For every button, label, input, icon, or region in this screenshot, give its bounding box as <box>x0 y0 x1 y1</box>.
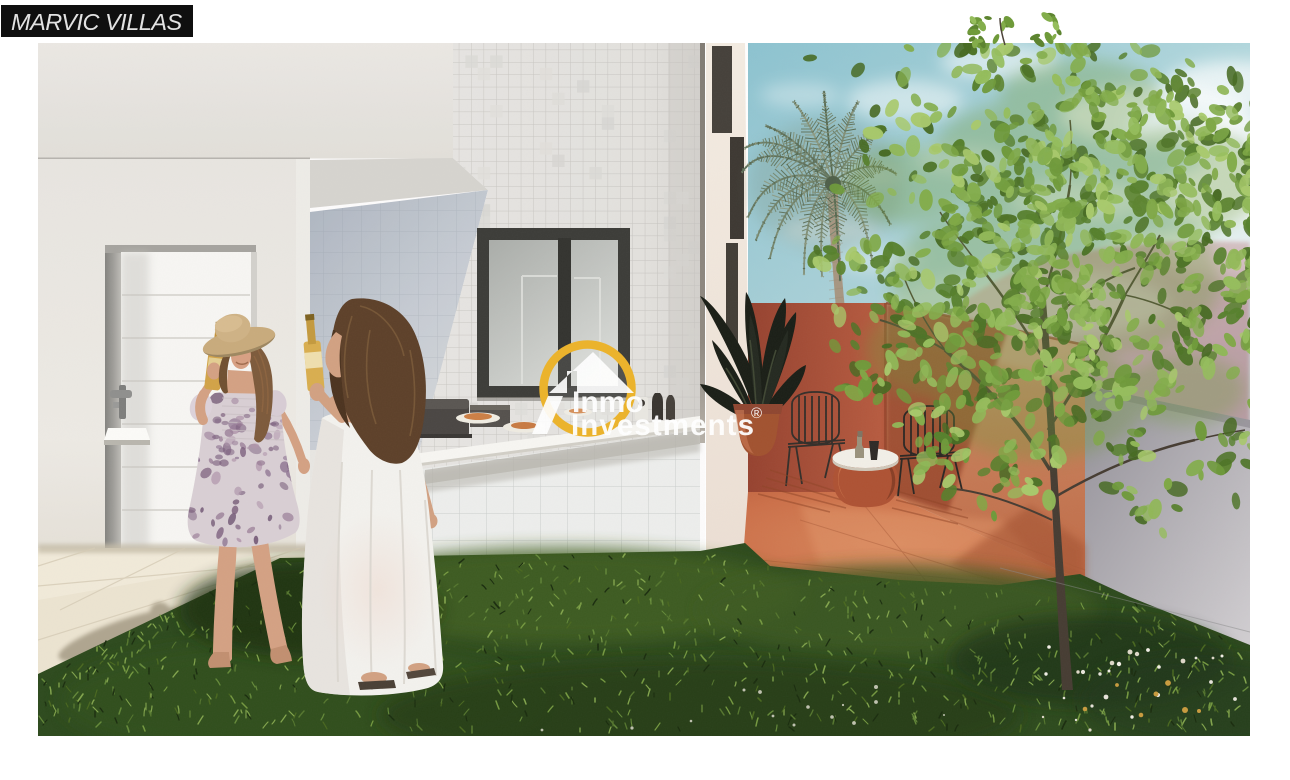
svg-text:MARVIC VILLAS: MARVIC VILLAS <box>11 9 184 35</box>
svg-text:®: ® <box>751 405 762 422</box>
svg-text:Investments: Investments <box>571 409 754 442</box>
